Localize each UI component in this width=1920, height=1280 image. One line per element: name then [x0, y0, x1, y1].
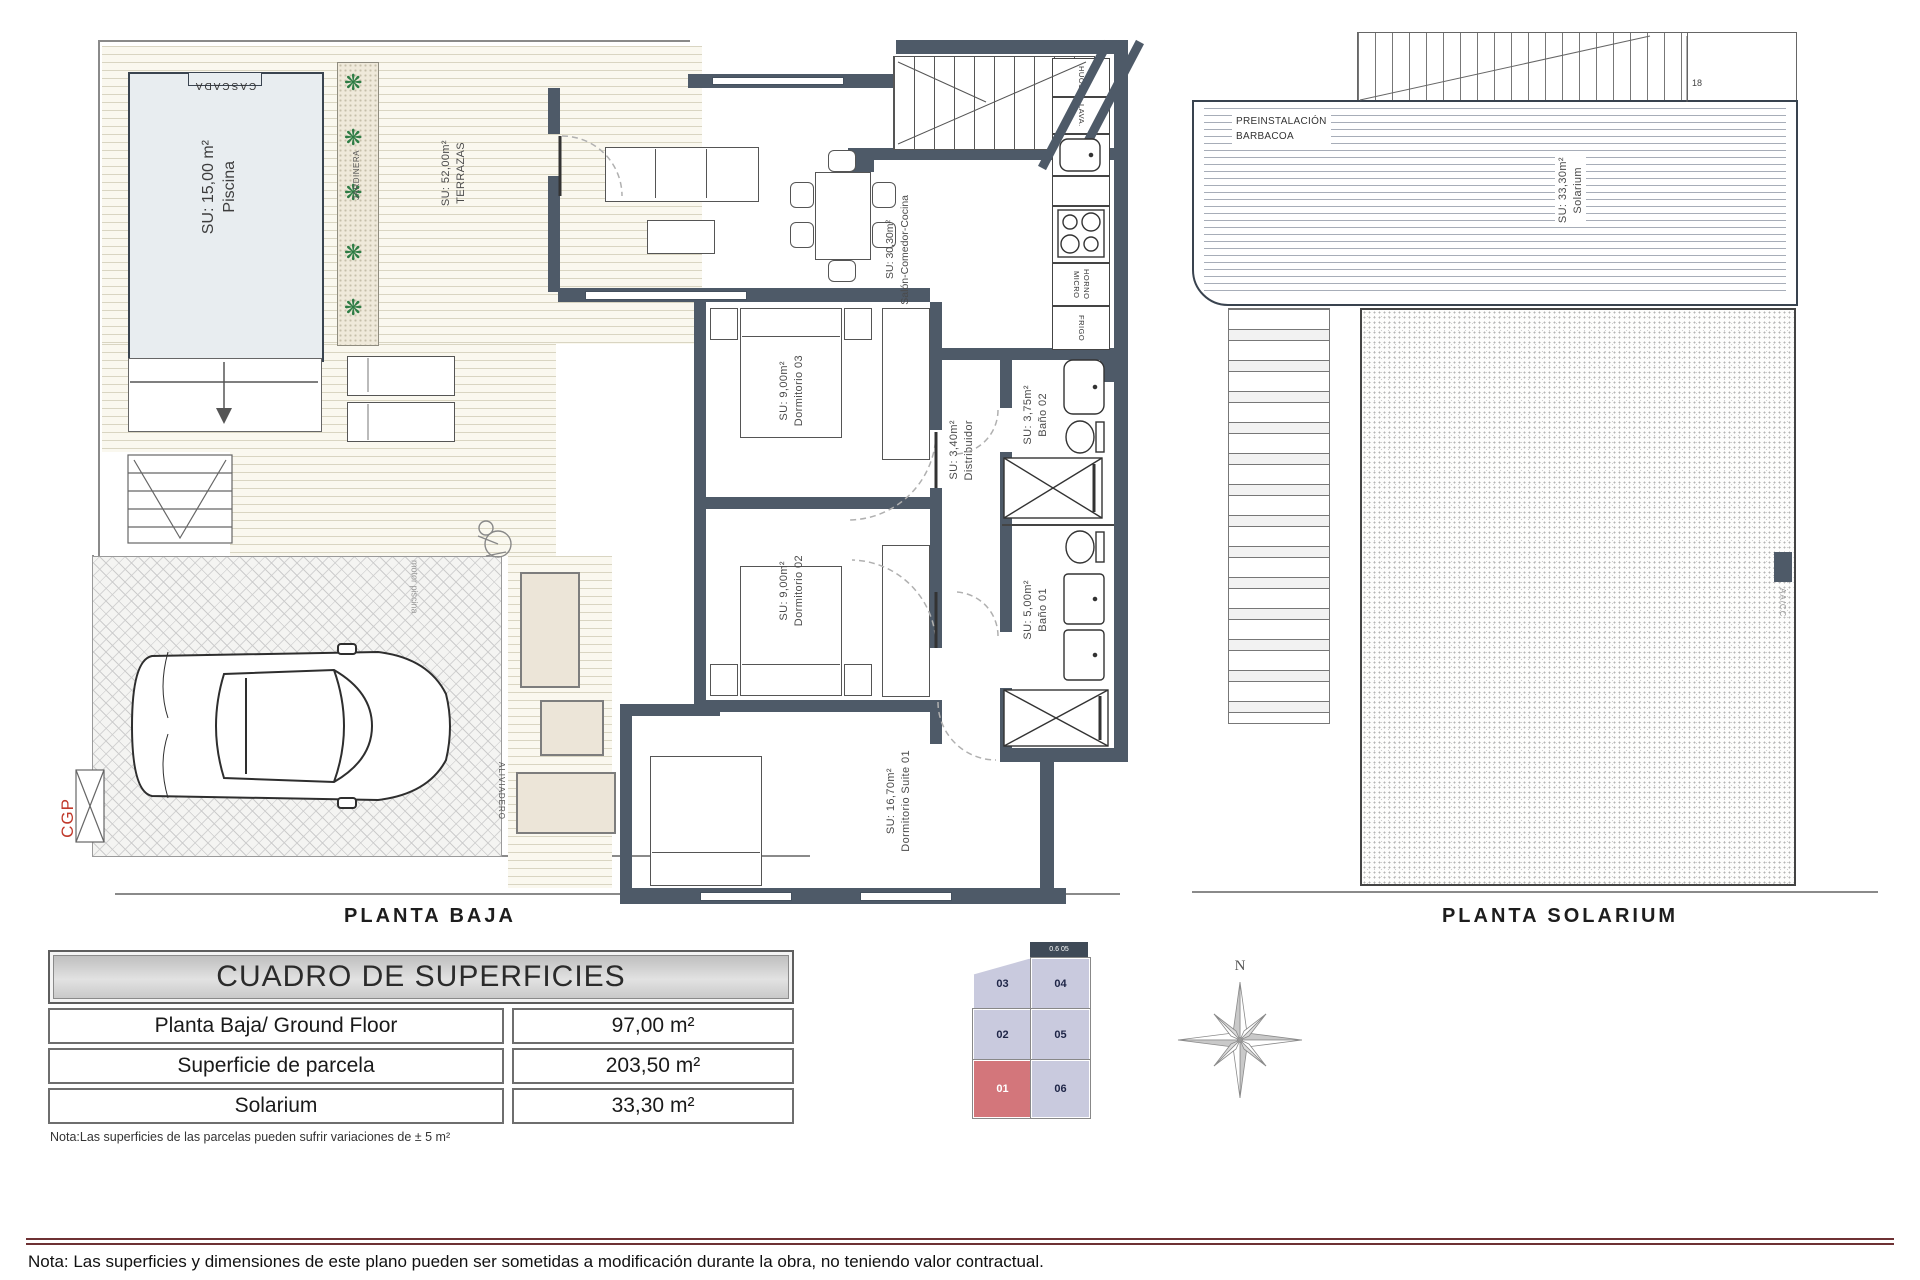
outdoor-table: [540, 700, 604, 756]
wall: [706, 497, 932, 509]
plot-map-top-label: 0.6 05: [1030, 942, 1088, 957]
bed-pillow-line: [742, 336, 840, 337]
bath1-label: Baño 01 SU: 5,00m²: [1022, 580, 1049, 640]
plot-cell-01: 01: [973, 1060, 1032, 1118]
garden-stairs: [128, 455, 232, 543]
planta-baja-caption: PLANTA BAJA: [260, 905, 600, 928]
driveway: [92, 556, 502, 857]
coffee-table: [647, 220, 715, 254]
dining-chair: [790, 222, 814, 248]
window: [712, 77, 844, 85]
outdoor-sofa: [516, 772, 616, 834]
bath2-toilet: [1066, 421, 1104, 453]
plot-cell-05: 05: [1031, 1009, 1090, 1061]
nightstand: [710, 664, 738, 696]
dining-chair: [790, 182, 814, 208]
wall: [548, 176, 560, 292]
kitchen-oven: HORNO MICRO: [1052, 263, 1110, 306]
wall: [620, 704, 632, 894]
plot-cell-04: 04: [1031, 958, 1090, 1010]
window: [700, 892, 792, 901]
window: [860, 892, 952, 901]
compass-star: [1170, 975, 1310, 1105]
kitchen-hob-cell: [1052, 206, 1110, 263]
sofa-line: [706, 149, 707, 198]
kitchen-cabinet: HUOS: [1052, 58, 1110, 97]
wall: [620, 888, 1066, 904]
footer-rule: [26, 1238, 1894, 1240]
barbecue-label: PREINSTALACIÓN BARBACOA: [1232, 112, 1331, 146]
wardrobe: [882, 308, 930, 460]
pool-motor-label: motor piscina: [408, 560, 421, 614]
surfaces-table-header: CUADRO DE SUPERFICIES: [48, 950, 794, 1004]
sofa: [605, 147, 759, 202]
dining-table: [815, 172, 871, 260]
pergola-slats: [1228, 308, 1330, 724]
bed-pillow-line: [652, 852, 760, 853]
wall: [1040, 748, 1054, 888]
bath-partition: [1002, 524, 1114, 526]
cgp-label: CGP: [58, 798, 78, 838]
kitchen-counter: [1052, 176, 1110, 206]
bath1-shower: [1004, 690, 1108, 746]
boundary-line: [98, 40, 100, 556]
bath2-sink: [1064, 360, 1104, 414]
table-row-label: Solarium: [48, 1088, 504, 1124]
planter-label: JARDINERA: [352, 150, 361, 200]
wall: [930, 700, 942, 744]
bath2-shower: [1004, 458, 1102, 518]
plant-icon: ❋: [344, 240, 362, 266]
aliviadero-label: ALIVIADERO: [497, 762, 506, 820]
aacc-unit: [1774, 552, 1792, 582]
wall: [930, 488, 942, 648]
bath2-label: Baño 02 SU: 3,75m²: [1022, 385, 1049, 445]
plant-icon: ❋: [344, 70, 362, 96]
wall: [1100, 356, 1124, 382]
nightstand: [844, 664, 872, 696]
wall: [620, 704, 720, 716]
table-row-value: 97,00 m²: [512, 1008, 794, 1044]
stair-landing: [1687, 32, 1797, 106]
wall: [1114, 40, 1128, 350]
plot-cell-06: 06: [1031, 1060, 1090, 1118]
wall: [896, 40, 1128, 54]
nightstand: [844, 308, 872, 340]
kitchen-washer: LAVA.: [1052, 97, 1110, 134]
planta-solarium-caption: PLANTA SOLARIUM: [1390, 905, 1730, 928]
table-note: Nota:Las superficies de las parcelas pue…: [50, 1130, 450, 1144]
table-row-value: 33,30 m²: [512, 1088, 794, 1124]
sofa-line: [655, 149, 656, 198]
bath1-sinks: [1064, 574, 1104, 680]
terrace-label: TERRAZAS SU: 52,00m²: [440, 140, 467, 206]
footer-rule: [26, 1243, 1894, 1245]
kitchen-sink-cell: [1052, 134, 1110, 176]
aacc-label: AA/CC: [1778, 588, 1787, 617]
plot-cell-03: 03: [973, 958, 1032, 1010]
wall: [1000, 348, 1012, 408]
footer-note: Nota: Las superficies y dimensiones de e…: [28, 1252, 1044, 1272]
solarium-label: Solarium SU: 33,30m²: [1555, 155, 1586, 225]
bedroom3-label: Dormitorio 03 SU: 9,00m²: [778, 355, 805, 426]
cascada-label: CASCADA: [150, 80, 300, 91]
plan-baseline: [1192, 891, 1878, 893]
roof-area: [1360, 308, 1796, 886]
plant-icon: ❋: [344, 295, 362, 321]
living-room-label: Salón-Comedor-Cocina SU: 30,30m²: [884, 195, 911, 305]
table-row-label: Planta Baja/ Ground Floor: [48, 1008, 504, 1044]
hallway-label: Distribuidor SU: 3,40m²: [948, 420, 975, 480]
dining-chair: [828, 260, 856, 282]
bedroom2-label: Dormitorio 02 SU: 9,00m²: [778, 555, 805, 626]
plot-cell-02: 02: [973, 1009, 1032, 1061]
wall: [548, 88, 560, 134]
suite-label: Dormitorio Suite 01 SU: 16,70m²: [885, 750, 912, 852]
window: [585, 291, 747, 300]
wall: [1114, 348, 1128, 762]
table-row-label: Superficie de parcela: [48, 1048, 504, 1084]
wall: [706, 700, 932, 712]
table-title: CUADRO DE SUPERFICIES: [216, 960, 625, 994]
sun-lounger: [347, 402, 455, 442]
floor-plan-sheet: CASCADA Piscina SU: 15,00 m² ❋ ❋ ❋ ❋ ❋ J…: [0, 0, 1920, 1280]
outdoor-chaise: [520, 572, 580, 688]
boundary-line: [98, 40, 690, 42]
stair-number: 18: [1692, 78, 1702, 88]
wardrobe: [882, 545, 930, 697]
wall: [694, 302, 706, 704]
plot-map: 0.6 05 03 04 02 05 01 06: [973, 942, 1089, 1132]
compass-rose: N: [1170, 958, 1310, 1108]
dining-chair: [828, 150, 856, 172]
kitchen-fridge: FRIGO: [1052, 306, 1110, 350]
bath1-toilet: [1066, 531, 1104, 563]
compass-north-label: N: [1170, 958, 1310, 975]
pool-steps: [128, 358, 322, 432]
table-row-value: 203,50 m²: [512, 1048, 794, 1084]
wall: [930, 302, 942, 430]
nightstand: [710, 308, 738, 340]
wall: [1000, 748, 1114, 762]
wall: [1000, 452, 1012, 632]
pool-label: Piscina SU: 15,00 m²: [200, 140, 239, 234]
plant-icon: ❋: [344, 125, 362, 151]
bed: [650, 756, 762, 886]
sun-lounger: [347, 356, 455, 396]
solarium-stair: [1357, 32, 1689, 106]
bed-pillow-line: [742, 664, 840, 665]
